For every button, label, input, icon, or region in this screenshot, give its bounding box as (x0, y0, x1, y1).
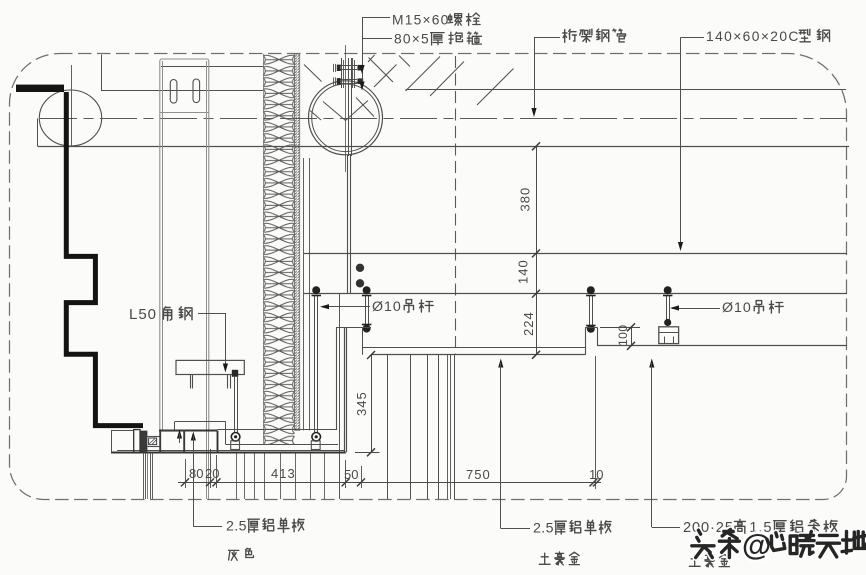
svg-text:345: 345 (354, 391, 369, 416)
svg-text:80×5: 80×5 (394, 31, 430, 46)
svg-text:100: 100 (616, 324, 630, 346)
svg-text:140: 140 (516, 259, 531, 284)
svg-text:224: 224 (521, 311, 536, 336)
svg-text:Ø10: Ø10 (372, 299, 402, 315)
svg-text:L50: L50 (129, 306, 157, 323)
svg-text:M15×60: M15×60 (392, 12, 449, 27)
svg-text:@: @ (742, 529, 770, 562)
svg-text:750: 750 (466, 467, 491, 482)
svg-text:50: 50 (344, 467, 358, 482)
svg-text:10: 10 (589, 467, 603, 482)
svg-text:20: 20 (205, 466, 219, 481)
svg-text:413: 413 (271, 466, 296, 481)
svg-text:2.5: 2.5 (226, 519, 247, 535)
svg-text:2.5: 2.5 (533, 521, 554, 537)
svg-text:380: 380 (518, 187, 533, 212)
svg-text:140×60×20C: 140×60×20C (706, 29, 800, 44)
svg-text:80: 80 (189, 466, 203, 481)
svg-text:Ø10: Ø10 (722, 300, 752, 316)
